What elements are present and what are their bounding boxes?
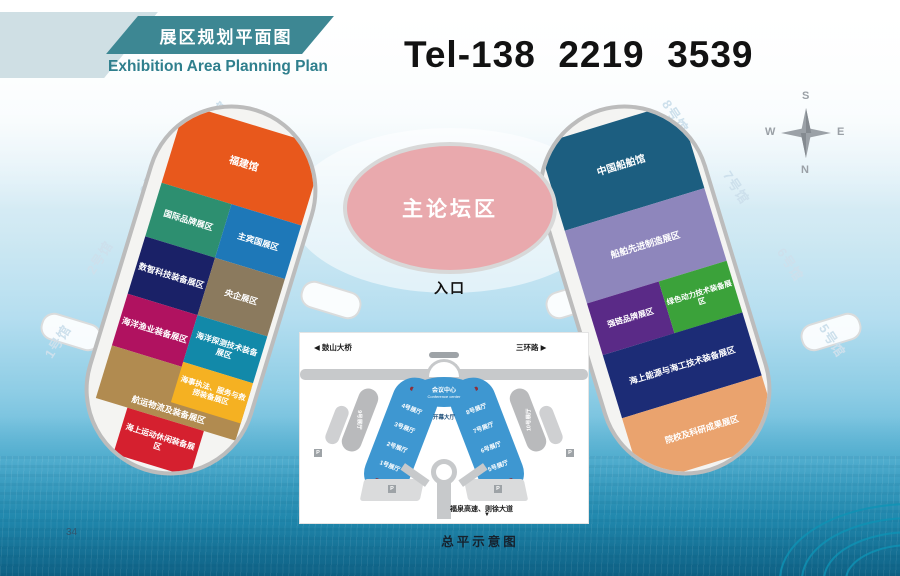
inset-hall-7-label: 7号展厅 [472, 419, 495, 435]
parking-icon: P [314, 449, 322, 457]
inset-hall-9-label: 9号展厅 [356, 410, 364, 430]
inset-hall-8-label: 8号展厅 [464, 400, 487, 416]
parking-icon: P [566, 449, 574, 457]
inset-hall-6-label: 6号展厅 [479, 438, 502, 454]
down-arrow-icon: ▼ [484, 512, 490, 518]
inset-hall-10-label: 10号展厅 [524, 409, 532, 432]
inset-conference-center: 会议中心 Conference center [412, 377, 476, 407]
inset-hall-4-label: 4号展厅 [400, 400, 423, 416]
site-overview-map: ◀ 鼓山大桥 三环路 ▶ 9号展厅 10号展厅 4号展厅 3号展厅 2号展厅 1… [300, 333, 588, 523]
compass-south: S [802, 90, 809, 102]
inset-roundabout [431, 459, 457, 485]
inset-road-third-ring: 三环路 ▶ [516, 342, 546, 353]
inset-road-gushan-bridge: ◀ 鼓山大桥 [314, 342, 352, 353]
inset-hall-5-label: 5号展厅 [486, 458, 509, 474]
inset-passage-banner [429, 352, 459, 358]
compass-east: E [837, 126, 844, 138]
main-forum-label: 主论坛区 [402, 193, 498, 223]
page-title-cn: 展区规划平面图 [128, 23, 324, 48]
inset-opening-hall-label: 开幕大厅 [424, 413, 464, 421]
map-caption: 总平示意图 [392, 531, 568, 550]
decorative-arcs [760, 468, 900, 576]
building-wing [297, 278, 364, 323]
compass: S N W E [763, 88, 849, 180]
compass-star-icon [781, 108, 831, 158]
inset-hall-1-label: 1号展厅 [378, 458, 401, 474]
hall-label-6: 6号馆 [764, 229, 818, 298]
compass-west: W [765, 126, 775, 138]
parking-icon: P [388, 485, 396, 493]
page-title-en: Exhibition Area Planning Plan [108, 58, 418, 76]
inset-bottom-road [437, 483, 451, 519]
poster-canvas: 展区规划平面图 Exhibition Area Planning Plan Te… [0, 0, 900, 576]
entrance-label: 入口 [400, 278, 500, 298]
page-number: 34 [66, 527, 77, 538]
phone-number: Tel-138 2219 3539 [404, 34, 754, 76]
inset-road-fuquan-expressway: 福泉高速、则徐大道 [450, 504, 513, 514]
parking-icon: P [494, 485, 502, 493]
inset-conference-center-en: Conference center [428, 394, 461, 399]
main-forum-area: 主论坛区 [343, 142, 557, 274]
inset-conference-center-cn: 会议中心 [432, 385, 456, 394]
compass-north: N [801, 164, 809, 176]
inset-hall-3-label: 3号展厅 [393, 419, 416, 435]
inset-hall-2-label: 2号展厅 [386, 438, 409, 454]
inset-road-arch [426, 359, 462, 377]
